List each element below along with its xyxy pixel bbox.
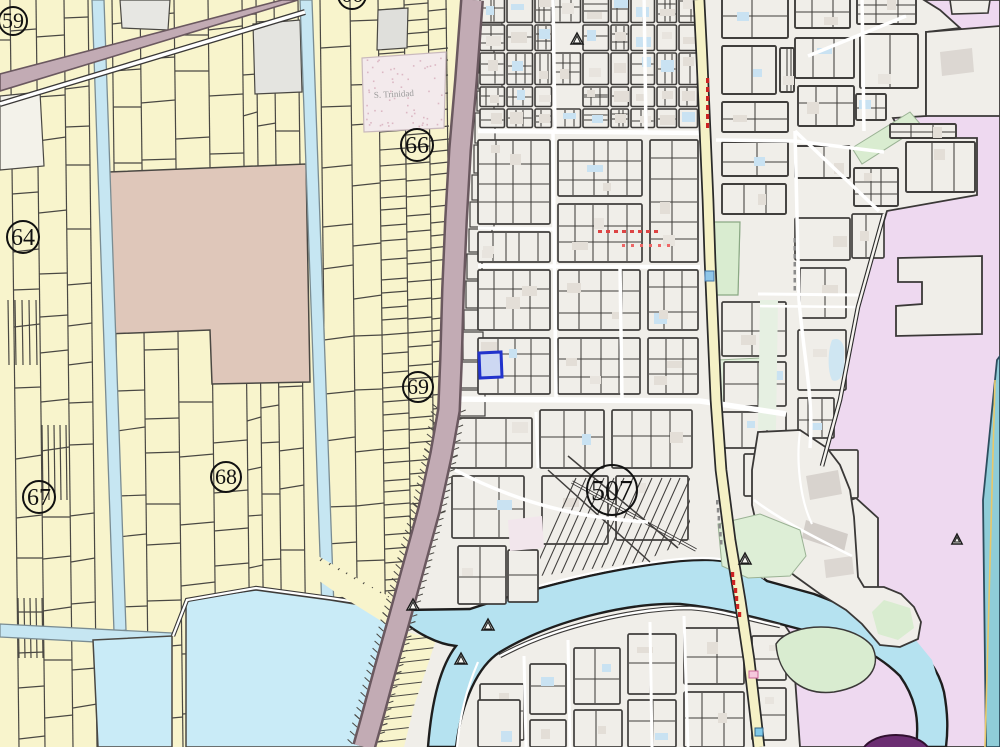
svg-text:59: 59 bbox=[2, 8, 24, 33]
svg-text:67: 67 bbox=[27, 485, 51, 511]
svg-text:507: 507 bbox=[591, 476, 633, 507]
svg-text:66: 66 bbox=[405, 133, 429, 159]
svg-text:64: 64 bbox=[11, 225, 35, 251]
svg-text:68: 68 bbox=[215, 464, 237, 489]
svg-text:69: 69 bbox=[407, 374, 429, 399]
svg-text:66: 66 bbox=[341, 0, 363, 7]
svg-text:S. Trinidad: S. Trinidad bbox=[374, 88, 415, 100]
